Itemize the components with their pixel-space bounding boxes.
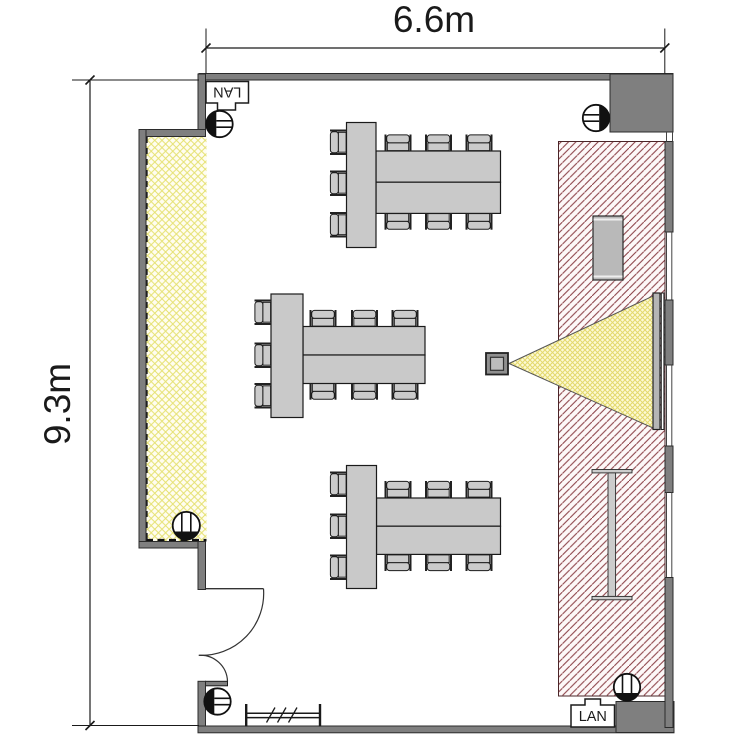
svg-text:9.3m: 9.3m [37,363,78,445]
svg-text:LAN: LAN [579,709,607,725]
svg-text:6.6m: 6.6m [393,0,475,40]
svg-text:LAN: LAN [213,83,241,99]
